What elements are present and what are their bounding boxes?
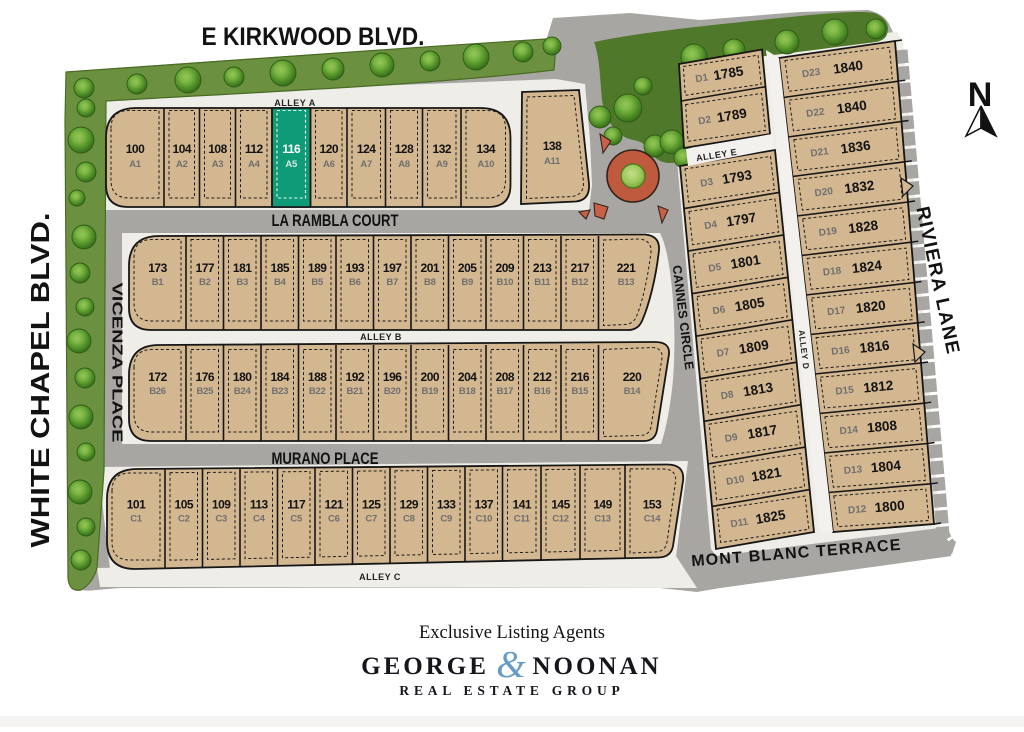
svg-text:100: 100 [126, 142, 145, 156]
svg-text:A11: A11 [544, 156, 561, 167]
svg-text:B24: B24 [234, 386, 252, 397]
svg-text:177: 177 [196, 261, 215, 275]
svg-text:D14: D14 [839, 424, 859, 437]
svg-text:B4: B4 [274, 277, 287, 288]
svg-text:129: 129 [400, 498, 419, 512]
svg-text:A4: A4 [248, 159, 261, 170]
svg-text:1808: 1808 [866, 418, 898, 436]
svg-text:B21: B21 [347, 386, 365, 397]
svg-text:D7: D7 [716, 347, 731, 360]
svg-text:184: 184 [271, 370, 290, 384]
svg-text:C10: C10 [476, 514, 493, 525]
svg-text:C3: C3 [215, 514, 227, 525]
svg-text:B19: B19 [422, 386, 439, 397]
svg-text:113: 113 [250, 498, 269, 512]
svg-text:C11: C11 [514, 514, 531, 525]
svg-text:C5: C5 [290, 514, 303, 525]
svg-text:B1: B1 [152, 277, 165, 288]
svg-text:D9: D9 [724, 432, 739, 445]
svg-text:A1: A1 [129, 159, 142, 170]
svg-text:GEORGE: GEORGE [361, 653, 489, 680]
svg-text:B25: B25 [197, 386, 215, 397]
svg-text:D13: D13 [843, 464, 863, 477]
svg-text:D8: D8 [720, 389, 735, 402]
svg-text:1804: 1804 [870, 458, 902, 476]
svg-text:D18: D18 [822, 265, 842, 278]
svg-text:Exclusive Listing Agents: Exclusive Listing Agents [419, 623, 605, 643]
svg-text:D5: D5 [708, 262, 723, 275]
svg-text:D19: D19 [818, 226, 838, 239]
svg-text:B26: B26 [149, 386, 166, 397]
svg-text:205: 205 [458, 261, 477, 275]
svg-text:VICENZA PLACE: VICENZA PLACE [109, 283, 126, 443]
svg-text:A7: A7 [360, 159, 372, 170]
svg-text:B20: B20 [384, 386, 401, 397]
svg-text:B9: B9 [461, 277, 473, 288]
svg-text:213: 213 [533, 261, 552, 275]
svg-text:C1: C1 [130, 514, 143, 525]
svg-text:B17: B17 [497, 386, 514, 397]
svg-text:D3: D3 [699, 177, 714, 190]
svg-text:138: 138 [543, 139, 562, 153]
svg-text:WHITE CHAPEL BLVD.: WHITE CHAPEL BLVD. [25, 213, 55, 548]
svg-text:188: 188 [308, 370, 327, 384]
svg-text:134: 134 [477, 142, 496, 156]
svg-text:121: 121 [325, 498, 344, 512]
svg-text:141: 141 [513, 498, 532, 512]
svg-text:217: 217 [571, 261, 590, 275]
svg-text:216: 216 [571, 370, 590, 384]
svg-text:D12: D12 [848, 504, 868, 517]
svg-text:B14: B14 [624, 386, 642, 397]
svg-text:149: 149 [593, 498, 612, 512]
svg-text:C12: C12 [552, 514, 569, 525]
svg-text:D15: D15 [835, 385, 855, 398]
svg-text:193: 193 [346, 261, 365, 275]
svg-text:137: 137 [475, 498, 494, 512]
svg-text:NOONAN: NOONAN [532, 653, 661, 680]
svg-text:B12: B12 [572, 277, 589, 288]
svg-text:173: 173 [148, 261, 167, 275]
svg-text:104: 104 [173, 142, 192, 156]
svg-text:128: 128 [395, 142, 414, 156]
svg-text:C4: C4 [253, 514, 266, 525]
svg-text:176: 176 [196, 370, 215, 384]
svg-text:208: 208 [496, 370, 515, 384]
svg-text:B7: B7 [386, 277, 398, 288]
svg-text:B10: B10 [497, 277, 514, 288]
svg-text:189: 189 [308, 261, 327, 275]
svg-text:C6: C6 [328, 514, 340, 525]
svg-text:A6: A6 [323, 159, 335, 170]
svg-text:B3: B3 [236, 277, 248, 288]
svg-text:D16: D16 [831, 345, 851, 358]
svg-text:201: 201 [421, 261, 440, 275]
svg-text:D2: D2 [697, 114, 712, 127]
svg-text:209: 209 [496, 261, 515, 275]
svg-text:B23: B23 [272, 386, 289, 397]
svg-text:120: 120 [320, 142, 339, 156]
svg-text:ALLEY A: ALLEY A [274, 98, 316, 108]
svg-text:192: 192 [346, 370, 365, 384]
svg-text:B16: B16 [534, 386, 551, 397]
svg-text:C8: C8 [403, 514, 415, 525]
svg-text:C13: C13 [594, 514, 611, 525]
svg-text:A2: A2 [176, 159, 188, 170]
svg-text:B2: B2 [199, 277, 211, 288]
svg-text:REAL ESTATE GROUP: REAL ESTATE GROUP [399, 683, 624, 698]
svg-text:204: 204 [458, 370, 477, 384]
svg-text:A9: A9 [436, 159, 448, 170]
svg-text:116: 116 [282, 142, 301, 156]
svg-text:B11: B11 [534, 277, 551, 288]
svg-text:ALLEY B: ALLEY B [360, 332, 402, 342]
svg-text:185: 185 [271, 261, 290, 275]
svg-text:MURANO PLACE: MURANO PLACE [272, 449, 379, 468]
svg-text:101: 101 [127, 498, 146, 512]
svg-text:212: 212 [533, 370, 552, 384]
svg-text:A8: A8 [398, 159, 410, 170]
svg-text:132: 132 [433, 142, 452, 156]
svg-text:108: 108 [208, 142, 227, 156]
svg-text:125: 125 [362, 498, 381, 512]
svg-text:220: 220 [623, 370, 642, 384]
svg-text:D6: D6 [712, 304, 727, 317]
svg-text:C2: C2 [178, 514, 190, 525]
svg-text:105: 105 [175, 498, 194, 512]
svg-text:197: 197 [383, 261, 402, 275]
svg-text:B18: B18 [459, 386, 476, 397]
svg-text:112: 112 [245, 142, 264, 156]
svg-text:A10: A10 [478, 159, 495, 170]
svg-text:B8: B8 [424, 277, 436, 288]
svg-text:LA RAMBLA COURT: LA RAMBLA COURT [272, 211, 399, 230]
svg-text:ALLEY C: ALLEY C [359, 572, 401, 582]
svg-text:133: 133 [437, 498, 456, 512]
svg-text:A5: A5 [285, 159, 298, 170]
svg-text:A3: A3 [212, 159, 224, 170]
svg-text:D4: D4 [704, 219, 719, 232]
svg-text:E KIRKWOOD BLVD.: E KIRKWOOD BLVD. [202, 23, 425, 51]
svg-text:200: 200 [421, 370, 440, 384]
svg-text:&: & [496, 644, 526, 686]
svg-text:C14: C14 [644, 514, 662, 525]
svg-text:B15: B15 [572, 386, 590, 397]
svg-text:B5: B5 [311, 277, 324, 288]
svg-text:109: 109 [212, 498, 231, 512]
svg-text:196: 196 [383, 370, 402, 384]
svg-text:180: 180 [233, 370, 252, 384]
svg-text:D1: D1 [695, 72, 710, 85]
svg-text:181: 181 [233, 261, 252, 275]
svg-text:B6: B6 [349, 277, 361, 288]
svg-text:C7: C7 [365, 514, 377, 525]
svg-text:153: 153 [643, 498, 662, 512]
svg-text:124: 124 [357, 142, 376, 156]
svg-text:1800: 1800 [874, 498, 905, 516]
svg-text:1812: 1812 [863, 378, 894, 396]
svg-text:B22: B22 [309, 386, 326, 397]
svg-text:B13: B13 [618, 277, 635, 288]
svg-text:117: 117 [287, 498, 306, 512]
svg-text:221: 221 [617, 261, 636, 275]
svg-text:172: 172 [148, 370, 167, 384]
svg-text:145: 145 [551, 498, 570, 512]
svg-text:C9: C9 [440, 514, 452, 525]
svg-text:D17: D17 [827, 305, 847, 318]
